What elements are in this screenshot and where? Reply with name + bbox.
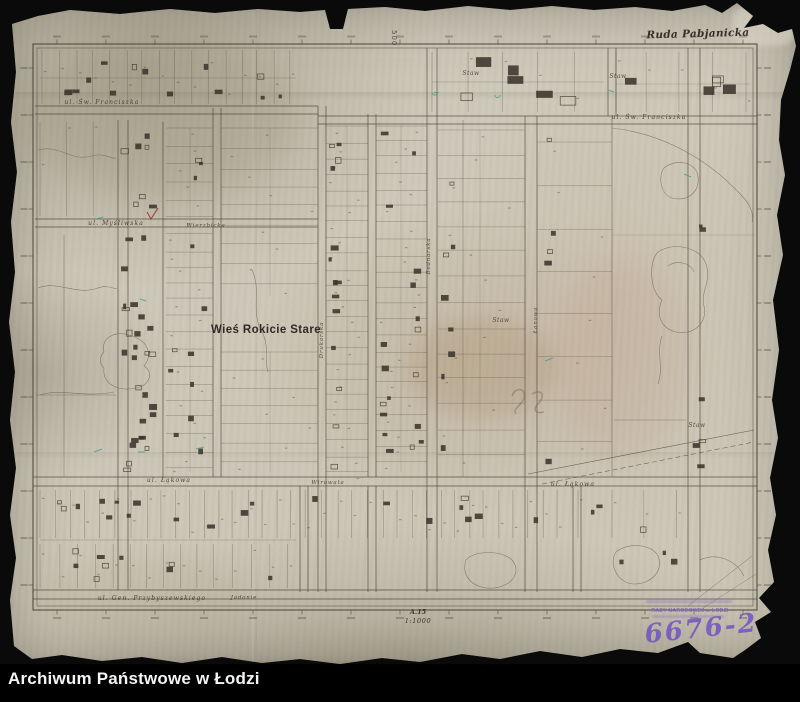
pond-outline-left — [100, 334, 149, 389]
frame-ticks — [21, 36, 772, 620]
map-frame — [33, 44, 757, 610]
archive-name: Archiwum Państwowe w Łodzi — [8, 669, 260, 689]
building-marks — [58, 57, 736, 581]
street-label-mysliwska: ul. Myśliwska — [88, 220, 144, 227]
scale-label: 1:1000 — [405, 617, 431, 625]
street-label-lakowa-left: ul. Łąkowa — [147, 477, 191, 484]
red-check-mark — [147, 208, 158, 219]
archive-bar: Archiwum Państwowe w Łodzi — [0, 664, 800, 702]
sheet-number: A.15 — [409, 608, 427, 616]
parcel-lines — [40, 50, 750, 588]
map-sheet: Ruda Pabjanicka Wieś Rokicie Stare ul. Ś… — [0, 0, 800, 666]
pencil-scribble — [512, 389, 544, 414]
pond-outline-right — [652, 247, 708, 333]
archive-stamp: RADY NARODOWEJ w ŁODZI 6676-2 — [643, 600, 759, 650]
street-label-drukarska: Drukarska — [319, 322, 325, 359]
street-label-wirowata: Wirowata — [311, 480, 344, 486]
pond-outline-bottom — [465, 553, 516, 589]
street-label-franciszka-right: ul. Św. Franciszka — [612, 113, 687, 121]
street-label-jadonie: Jadonie — [230, 595, 257, 601]
pond-label-1: Staw — [462, 70, 480, 77]
street-label-franciszka-left: ul. Św. Franciszka — [65, 98, 140, 106]
map-drawing: Ruda Pabjanicka Wieś Rokicie Stare ul. Ś… — [0, 0, 800, 702]
map-labels: Ruda Pabjanicka Wieś Rokicie Stare ul. Ś… — [65, 27, 750, 625]
street-label-wierzbicka: Wierzbicka — [186, 223, 225, 229]
street-label-przybyszewskiego: ul. Gen. Przybyszewskiego — [98, 595, 206, 602]
stamp-inventory-number: 6676-2 — [643, 608, 759, 650]
street-label-bednarska: Bednarska — [426, 238, 432, 276]
street-label-lanowa: Łanowa — [533, 307, 539, 335]
scan-viewport: Ruda Pabjanicka Wieś Rokicie Stare ul. Ś… — [0, 0, 800, 702]
pond-label-2: Staw — [609, 73, 627, 80]
pond-label-4: Staw — [688, 422, 706, 429]
pond-label-3: Staw — [492, 317, 510, 324]
pond-outline-topright — [661, 162, 698, 198]
village-label: Wieś Rokicie Stare — [211, 324, 321, 336]
grid-number-note: 500 — [390, 30, 398, 46]
street-label-lakowa-right: ul. Łąkowa — [551, 481, 595, 488]
street-lines — [33, 48, 757, 610]
region-label: Ruda Pabjanicka — [645, 27, 749, 42]
